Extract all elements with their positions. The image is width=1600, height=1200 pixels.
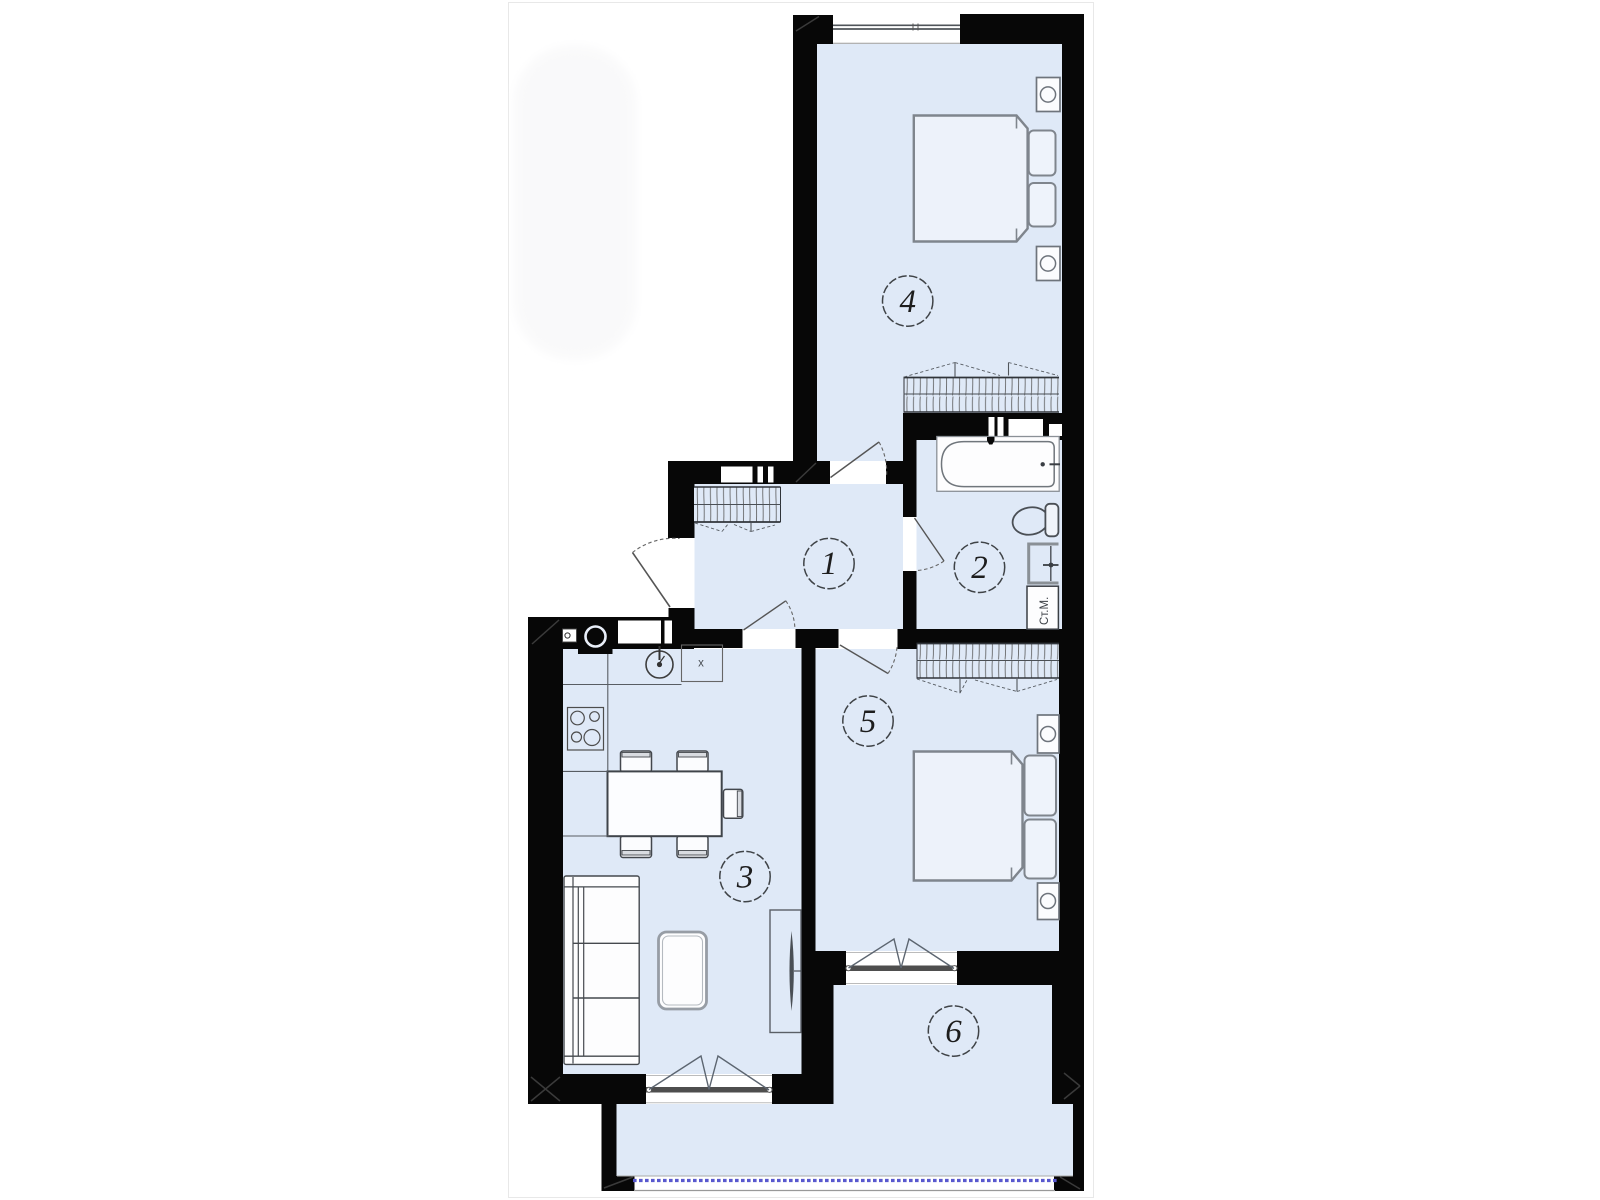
svg-text:Ст.М.: Ст.М.	[1039, 597, 1051, 625]
svg-text:6: 6	[945, 1014, 962, 1050]
svg-text:5: 5	[860, 704, 877, 740]
svg-text:4: 4	[899, 284, 916, 320]
svg-text:1: 1	[821, 546, 838, 582]
svg-text:3: 3	[736, 860, 754, 896]
svg-text:x: x	[698, 658, 704, 670]
svg-text:2: 2	[971, 550, 988, 586]
